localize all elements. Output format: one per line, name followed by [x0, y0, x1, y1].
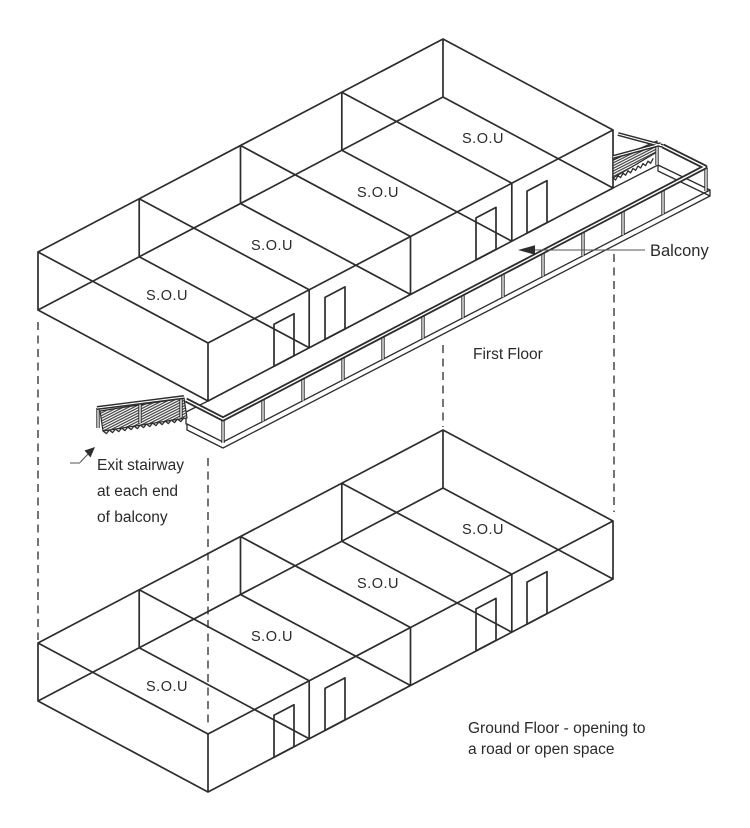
- ground-floor-caption-line1: Ground Floor - opening to: [468, 720, 646, 737]
- ground-floor-unit-label-2: S.O.U: [251, 629, 293, 645]
- balcony-label: Balcony: [650, 242, 709, 260]
- first-floor-unit-label-4: S.O.U: [462, 131, 504, 147]
- exit-stairway-note-line3: of balcony: [97, 509, 168, 526]
- balcony-railing-core: [186, 146, 705, 419]
- building-isometric-diagram: S.O.U S.O.U S.O.U S.O.U S.O.U S.O.U S.O.…: [0, 0, 750, 828]
- diagram-canvas: S.O.U S.O.U S.O.U S.O.U S.O.U S.O.U S.O.…: [0, 0, 750, 828]
- left-exit-stairway: [97, 397, 187, 434]
- ground-floor-unit-label-4: S.O.U: [462, 522, 504, 538]
- exit-stairway-note-line1: Exit stairway: [97, 457, 184, 474]
- ground-floor-caption-line2: a road or open space: [468, 741, 615, 758]
- ground-floor-unit-label-3: S.O.U: [357, 576, 399, 592]
- ground-floor-unit-label-1: S.O.U: [146, 679, 188, 695]
- first-floor-unit-label-3: S.O.U: [357, 185, 399, 201]
- balcony-arrowhead-icon: [518, 245, 535, 255]
- first-floor-unit-label-1: S.O.U: [146, 288, 188, 304]
- first-floor-label: First Floor: [473, 346, 543, 363]
- first-floor-unit-label-2: S.O.U: [251, 238, 293, 254]
- exit-stairway-leader-line: [70, 453, 89, 463]
- right-exit-stairway: [613, 134, 663, 180]
- balcony-railing-posts: [223, 168, 706, 443]
- exit-stairway-note-line2: at each end: [97, 483, 178, 500]
- balcony-railing: [186, 146, 705, 419]
